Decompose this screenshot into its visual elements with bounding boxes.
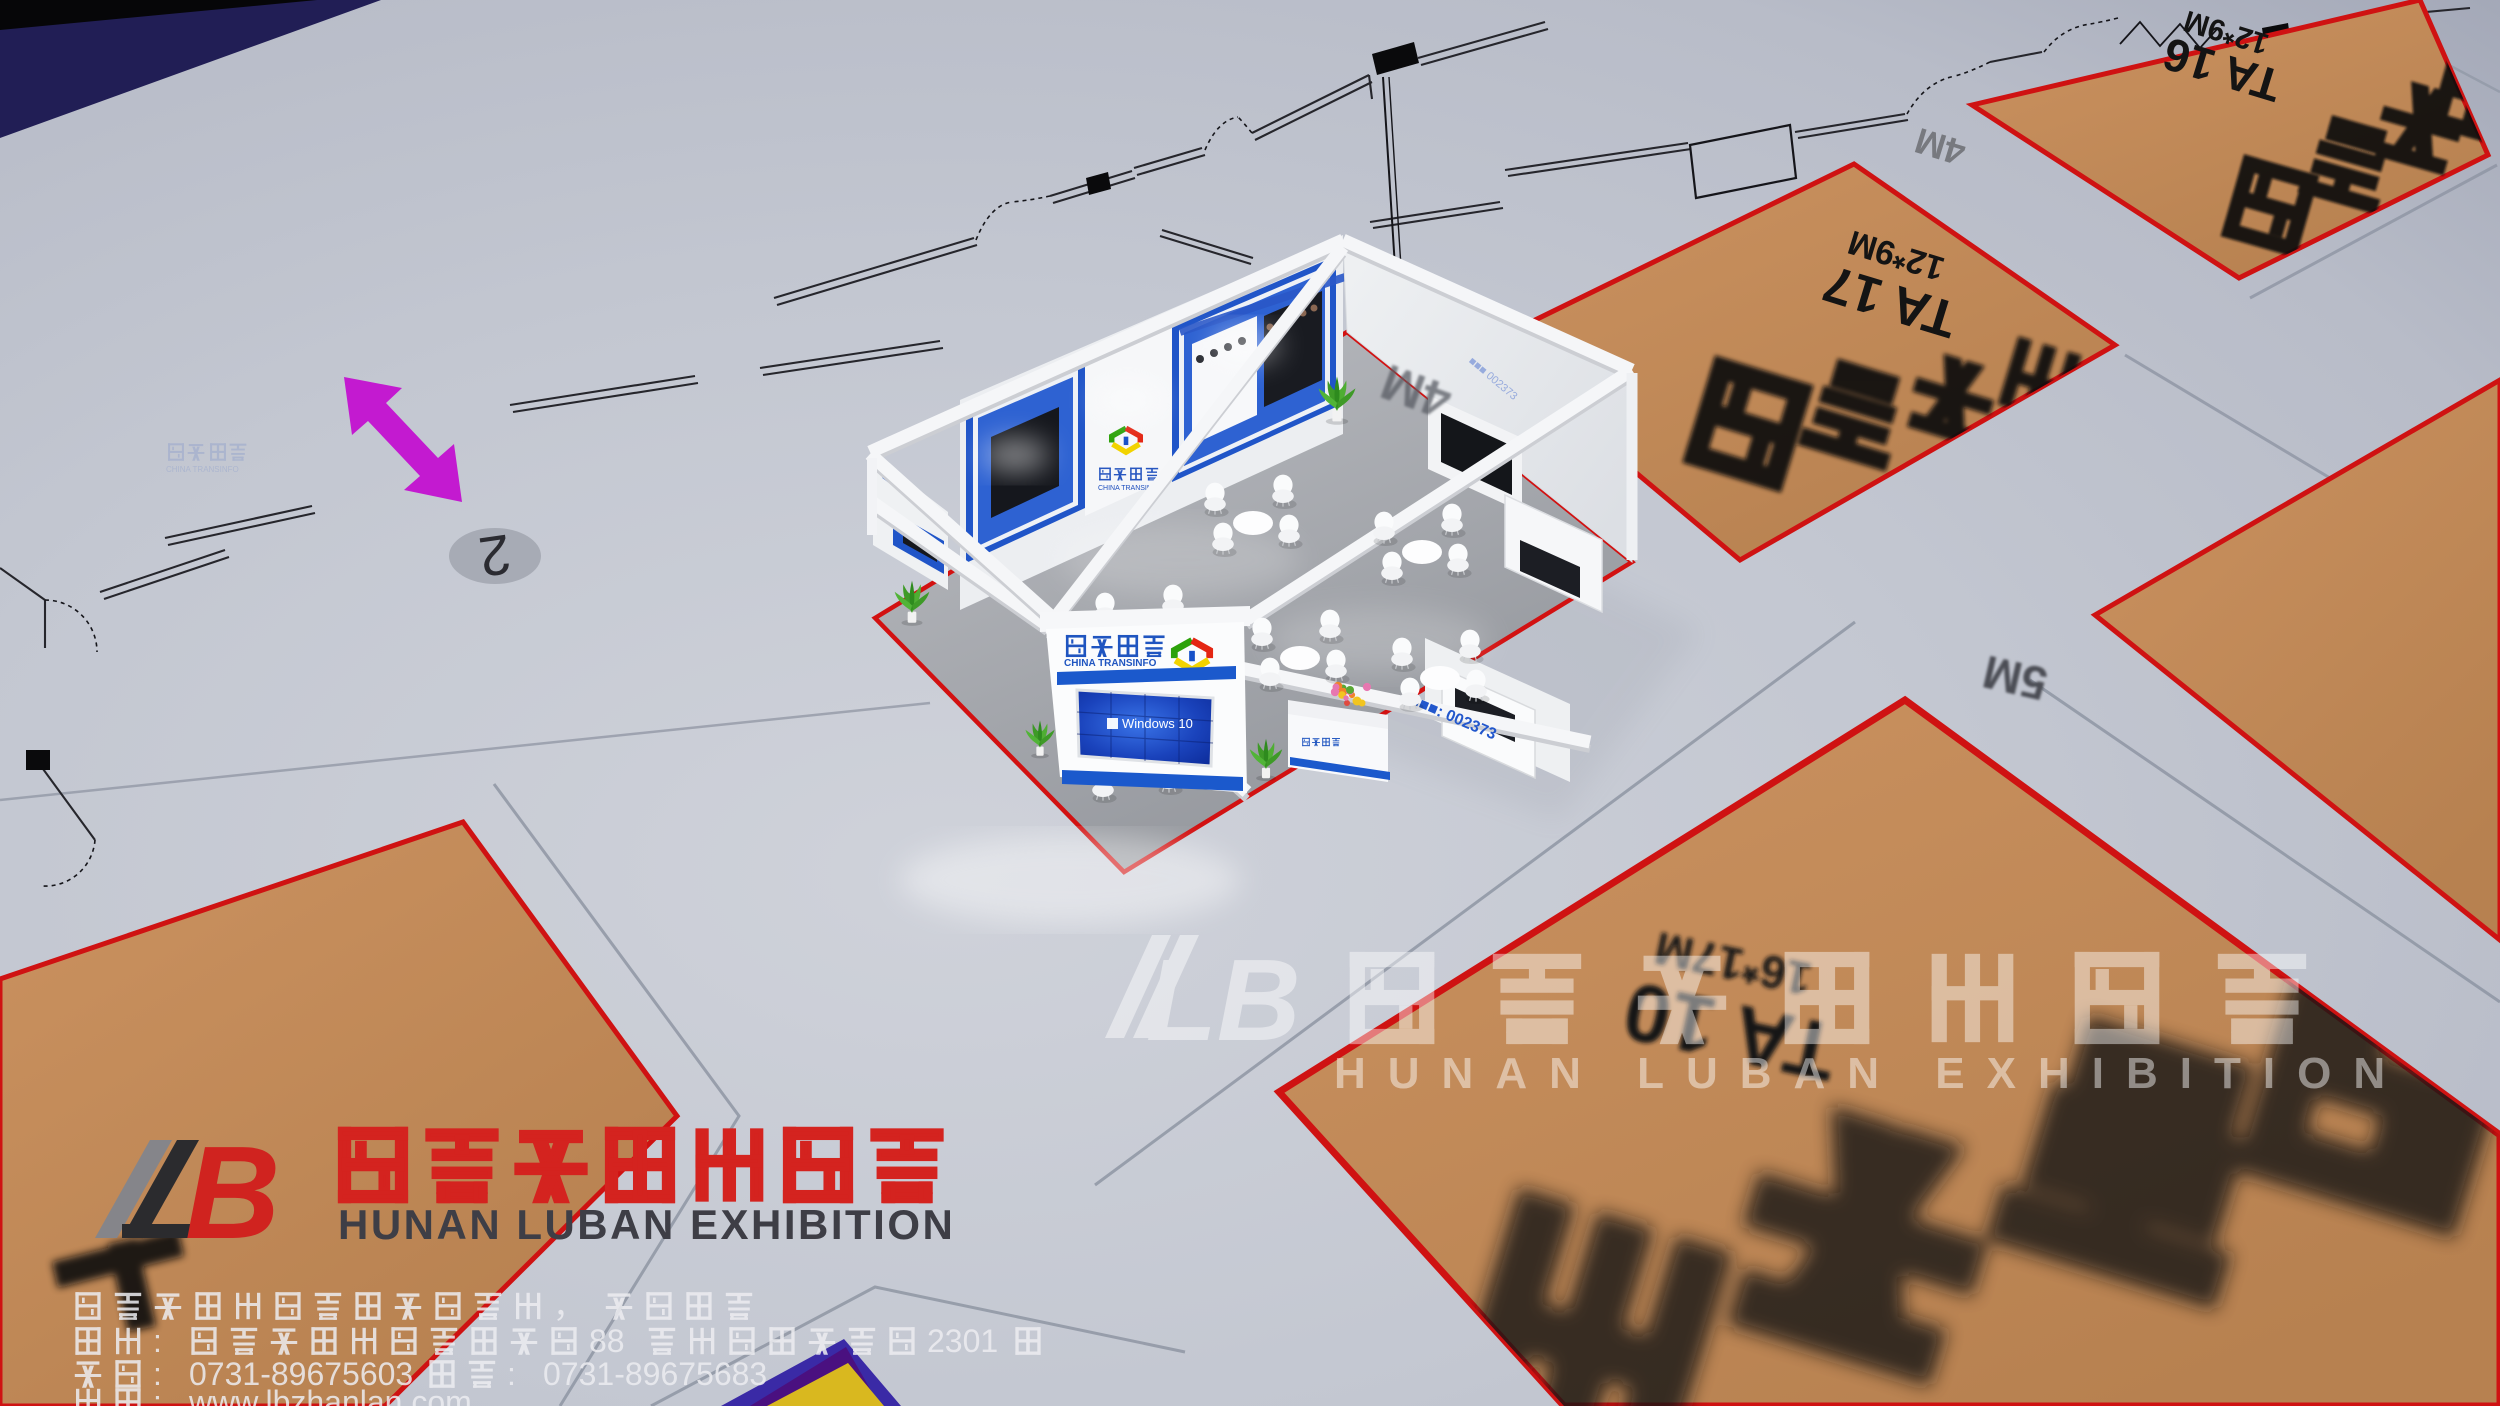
svg-text:LB: LB — [1146, 935, 1301, 1065]
svg-text::: : — [507, 1356, 516, 1392]
svg-text:CHINA TRANSINFO: CHINA TRANSINFO — [166, 465, 239, 474]
svg-text:B: B — [185, 1119, 280, 1266]
svg-text:Windows 10: Windows 10 — [1122, 716, 1193, 731]
svg-text:HUNAN LUBAN EXHIBITION: HUNAN LUBAN EXHIBITION — [338, 1201, 955, 1248]
svg-text:2301: 2301 — [927, 1323, 998, 1359]
svg-text:0731-89675683: 0731-89675683 — [543, 1356, 767, 1392]
svg-text:CHINA TRANSINFO: CHINA TRANSINFO — [1064, 658, 1157, 669]
svg-text:，: ， — [553, 1288, 585, 1324]
svg-text::: : — [153, 1384, 162, 1406]
svg-text::: : — [153, 1323, 162, 1359]
svg-text:www.lbzhanlan.com: www.lbzhanlan.com — [188, 1384, 472, 1406]
svg-text:HUNAN LUBAN EXHIBITION: HUNAN LUBAN EXHIBITION — [1334, 1049, 2407, 1098]
svg-text:88: 88 — [589, 1323, 625, 1359]
